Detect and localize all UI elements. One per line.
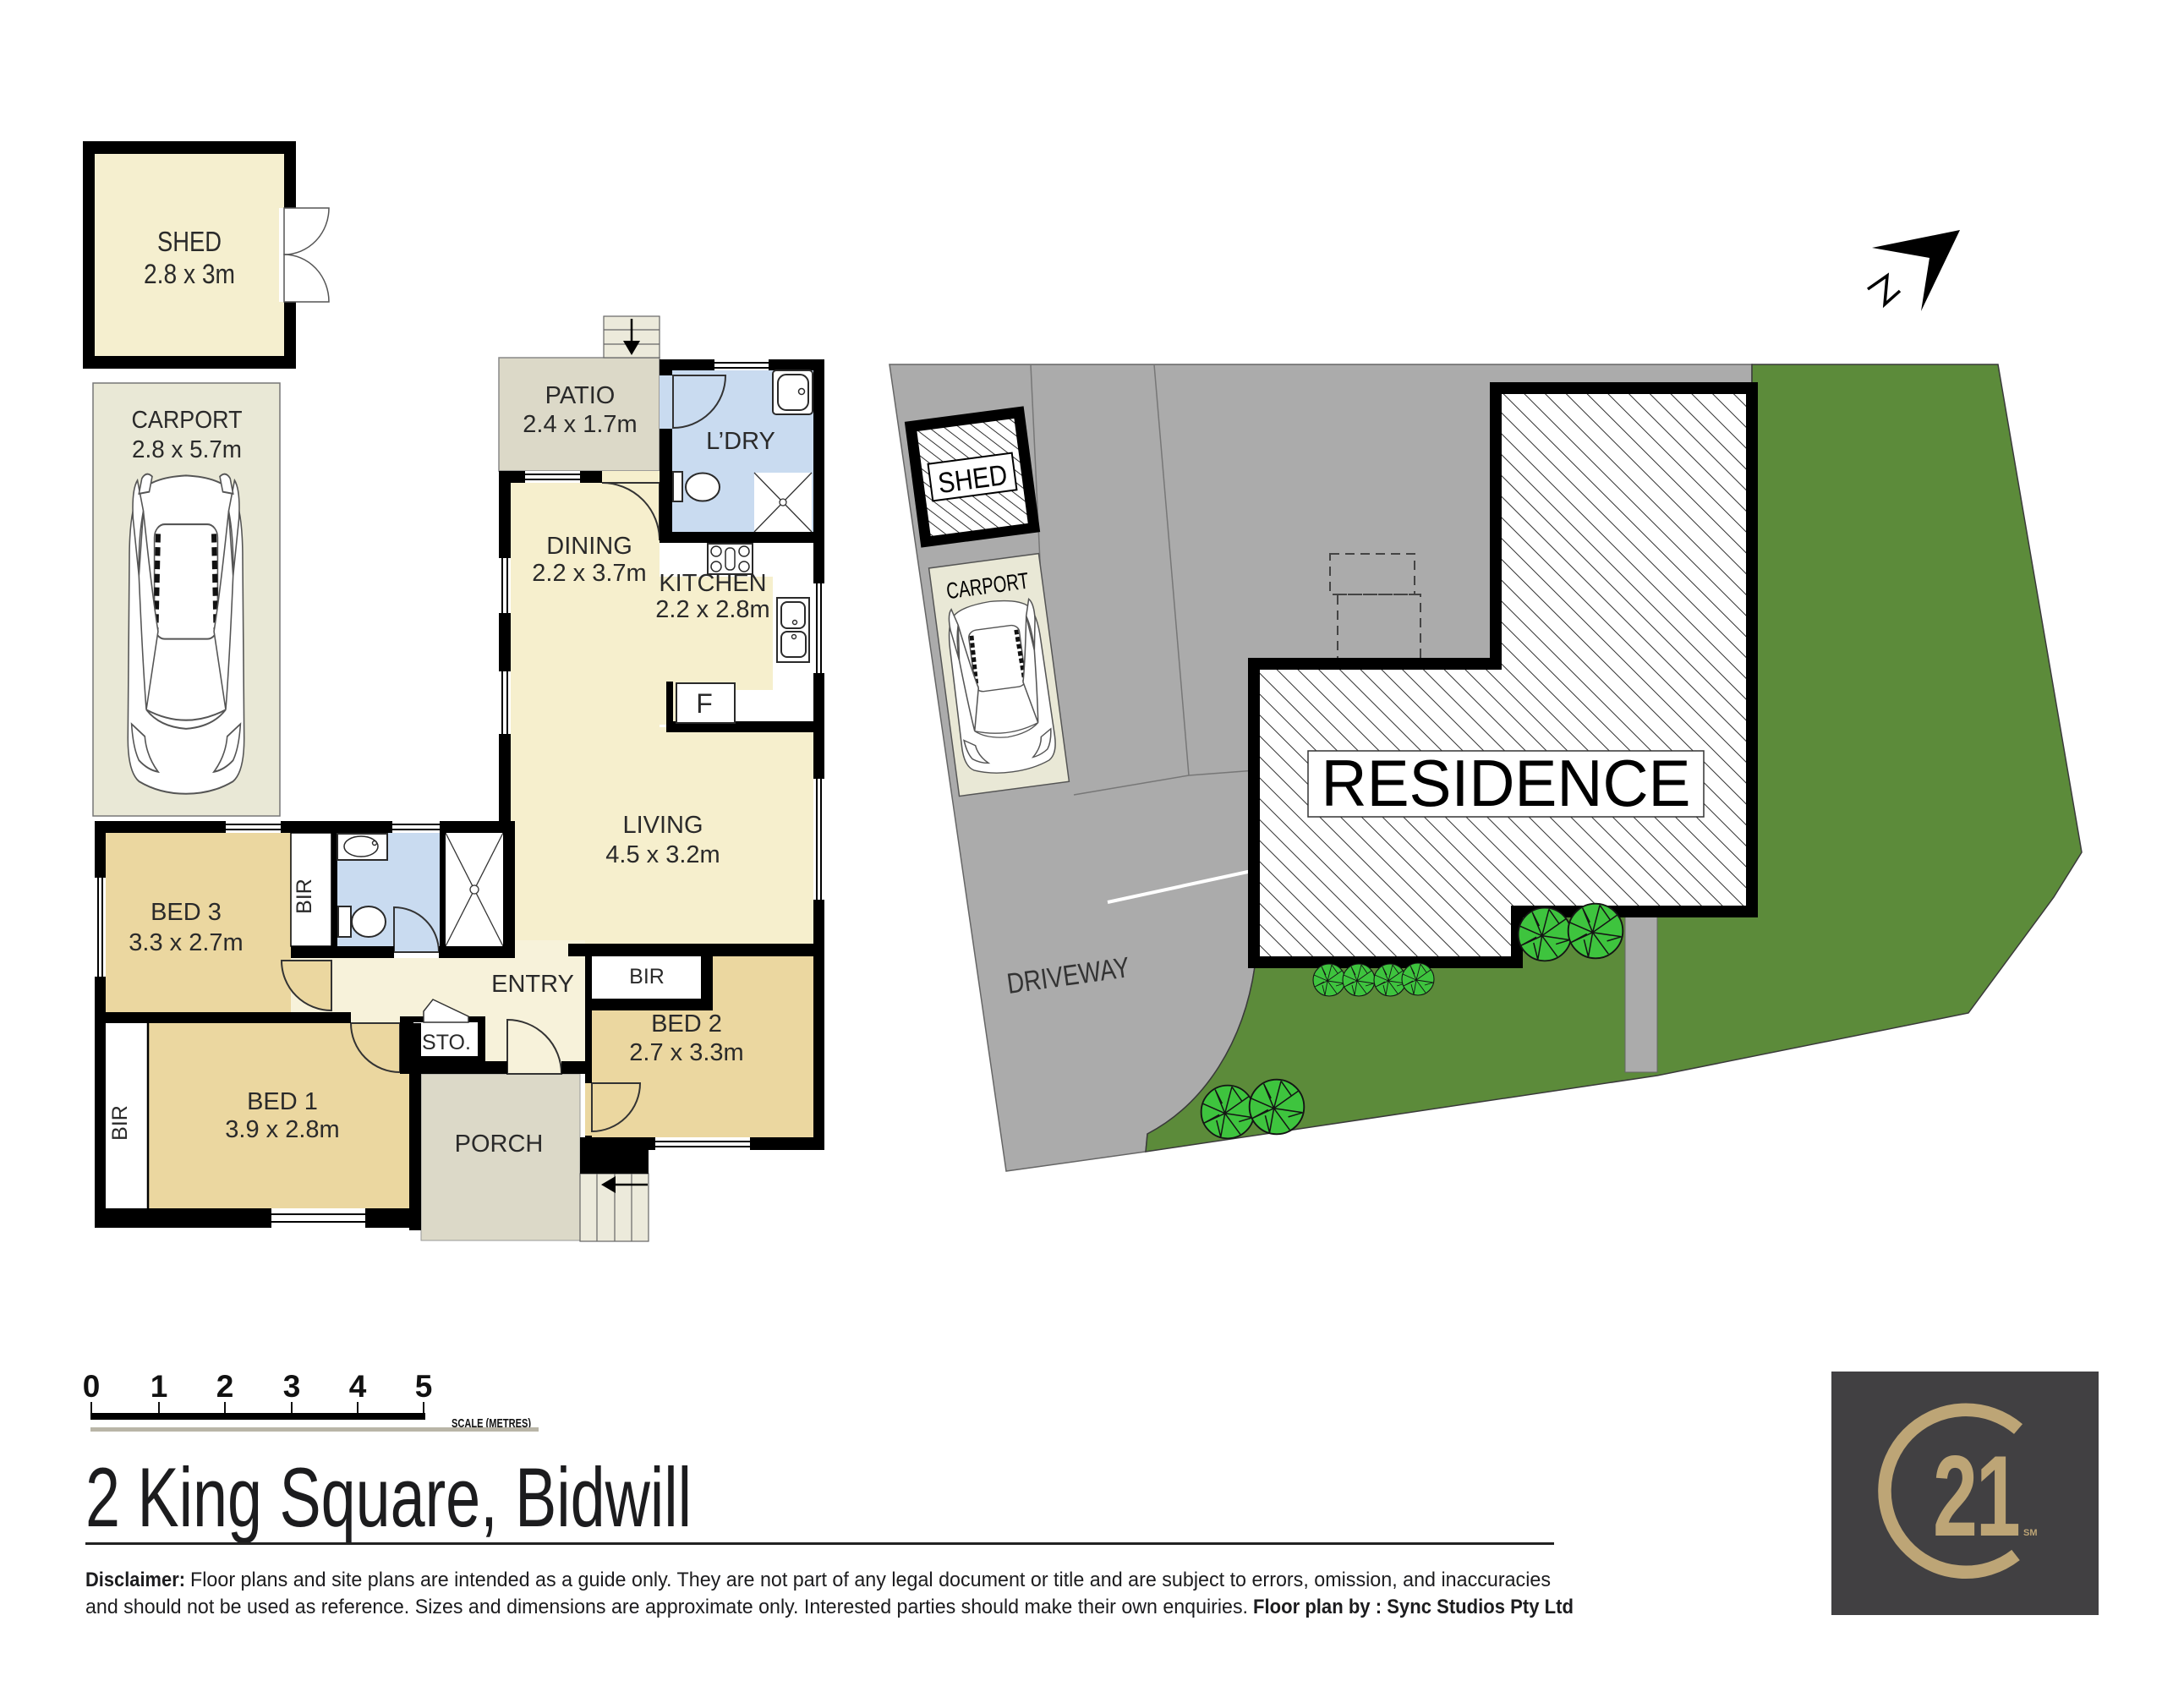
svg-text:2.4 x 1.7m: 2.4 x 1.7m — [523, 411, 637, 438]
svg-text:BIR: BIR — [108, 1105, 132, 1141]
svg-text:ENTRY: ENTRY — [491, 971, 574, 998]
svg-text:2 King Square, Bidwill: 2 King Square, Bidwill — [85, 1450, 692, 1544]
svg-text:DINING: DINING — [546, 533, 632, 560]
svg-text:1: 1 — [151, 1369, 168, 1404]
svg-text:2.7 x 3.3m: 2.7 x 3.3m — [629, 1039, 743, 1066]
svg-text:0: 0 — [83, 1369, 101, 1404]
svg-text:Disclaimer:: Disclaimer: — [85, 1569, 185, 1591]
svg-text:2.2 x 2.8m: 2.2 x 2.8m — [655, 596, 769, 623]
svg-text:KITCHEN: KITCHEN — [659, 570, 766, 597]
svg-text:2: 2 — [216, 1369, 234, 1404]
svg-text:F: F — [696, 688, 713, 719]
svg-text:PATIO: PATIO — [545, 382, 616, 409]
svg-text:2.8 x 3m: 2.8 x 3m — [144, 259, 235, 289]
svg-text:L’DRY: L’DRY — [706, 428, 775, 455]
svg-text:21: 21 — [1933, 1432, 2019, 1560]
svg-text:BED 1: BED 1 — [247, 1088, 318, 1115]
svg-text:SHED: SHED — [157, 226, 222, 257]
svg-text:BIR: BIR — [629, 965, 665, 988]
svg-text:BED 3: BED 3 — [151, 899, 222, 926]
svg-text:2.8 x 5.7m: 2.8 x 5.7m — [132, 436, 242, 463]
svg-text:5: 5 — [415, 1369, 433, 1404]
svg-text:BIR: BIR — [293, 879, 316, 914]
svg-text:4: 4 — [349, 1369, 367, 1404]
svg-text:CARPORT: CARPORT — [132, 407, 243, 434]
svg-text:Floor plan by : Sync Studios P: Floor plan by : Sync Studios Pty Ltd — [1253, 1596, 1574, 1618]
svg-text:3: 3 — [283, 1369, 301, 1404]
svg-text:RESIDENCE: RESIDENCE — [1322, 746, 1691, 820]
svg-text:SM: SM — [2023, 1528, 2038, 1538]
svg-text:3.3 x 2.7m: 3.3 x 2.7m — [129, 929, 243, 956]
svg-text:STO.: STO. — [422, 1031, 471, 1054]
svg-text:PORCH: PORCH — [455, 1131, 544, 1158]
svg-text:and should not be used as refe: and should not be used as reference. Siz… — [85, 1596, 1248, 1618]
svg-text:3.9 x 2.8m: 3.9 x 2.8m — [225, 1116, 339, 1143]
svg-text:BED 2: BED 2 — [651, 1010, 722, 1038]
svg-text:2.2 x 3.7m: 2.2 x 3.7m — [532, 560, 646, 587]
svg-text:4.5 x 3.2m: 4.5 x 3.2m — [605, 841, 720, 868]
svg-text:LIVING: LIVING — [622, 812, 703, 839]
svg-text:Floor plans and site plans are: Floor plans and site plans are intended … — [190, 1569, 1551, 1591]
